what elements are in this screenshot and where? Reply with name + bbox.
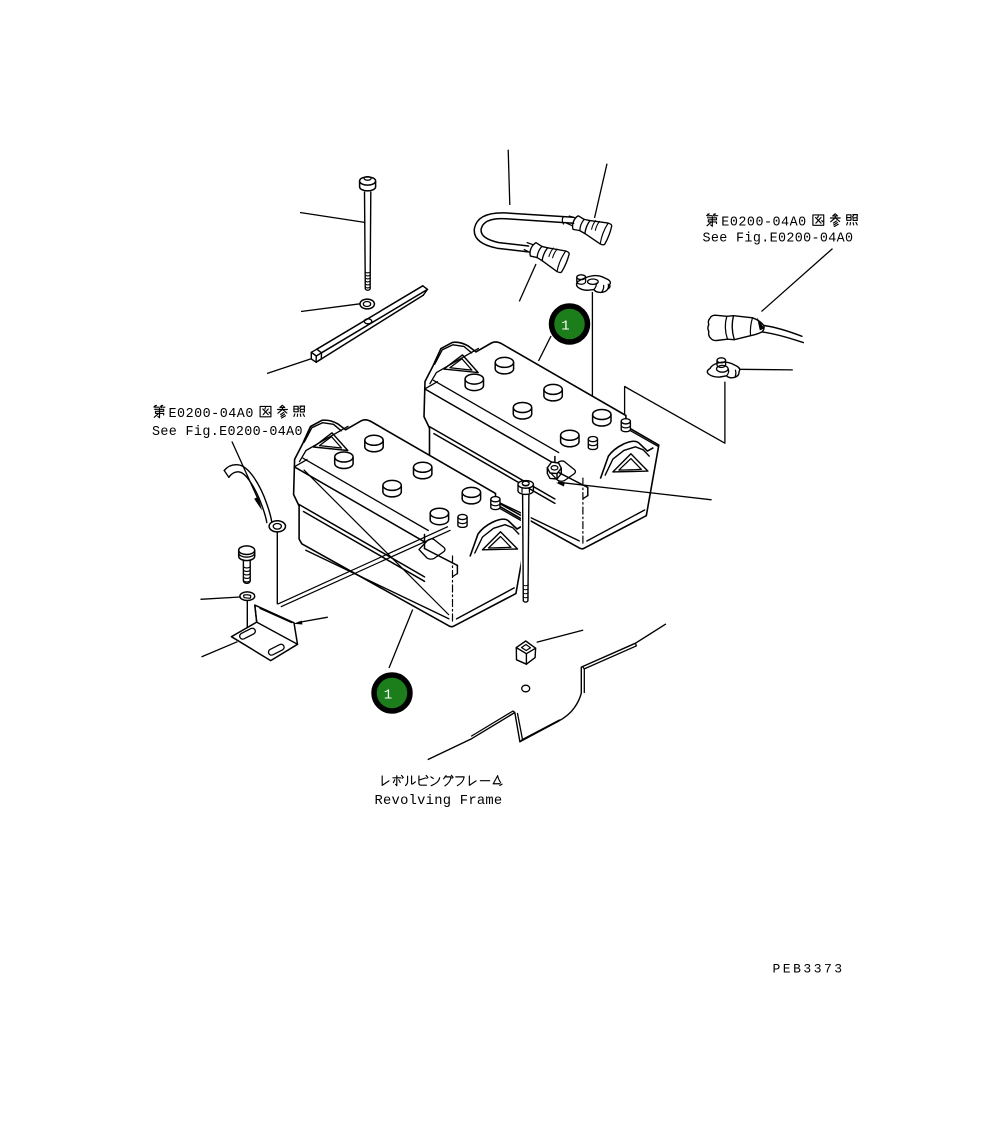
svg-text:E0200-04A0: E0200-04A0 — [169, 407, 254, 422]
svg-text:See Fig.E0200-04A0: See Fig.E0200-04A0 — [703, 231, 854, 246]
svg-text:See Fig.E0200-04A0: See Fig.E0200-04A0 — [152, 425, 303, 440]
svg-text:Revolving Frame: Revolving Frame — [375, 793, 503, 809]
svg-text:1: 1 — [561, 319, 569, 335]
svg-text:1: 1 — [384, 688, 392, 704]
svg-text:E0200-04A0: E0200-04A0 — [721, 216, 806, 231]
svg-text:PEB3373: PEB3373 — [773, 962, 845, 977]
